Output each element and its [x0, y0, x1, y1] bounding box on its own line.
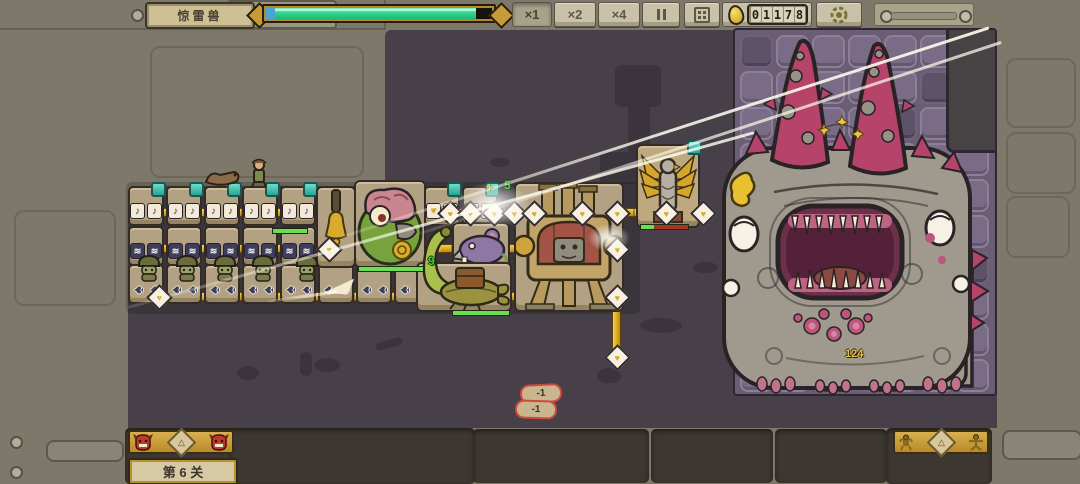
- unit-card[interactable]: ♪♪: [280, 186, 316, 226]
- minimap-button[interactable]: [684, 2, 720, 27]
- hero-icon: [968, 434, 984, 451]
- currency-digits: 0 1 1 7 8: [747, 4, 808, 25]
- frame-panel: [1006, 196, 1070, 258]
- gold-egg-icon: [726, 3, 745, 25]
- recess-panel: [473, 429, 649, 483]
- boss-monster[interactable]: [716, 26, 998, 398]
- speed-x4-label: ×4: [612, 7, 627, 22]
- note-icon: ♪: [261, 203, 276, 219]
- recess-panel: [229, 428, 475, 484]
- heart-icon: ♥: [615, 293, 620, 303]
- frame-panel: [1006, 58, 1076, 128]
- top-slider-panel[interactable]: [874, 3, 974, 26]
- recess-panel: [775, 429, 887, 483]
- note-icon: ♪: [223, 203, 238, 219]
- note-icon: ♪: [168, 203, 183, 219]
- speed-x1-button[interactable]: ×1: [512, 2, 552, 27]
- green-creature: [356, 182, 424, 266]
- boss-nameplate: 惊雷兽: [145, 2, 255, 29]
- unit-card[interactable]: ♪♪: [166, 186, 202, 226]
- spade-icon: ♠: [397, 283, 411, 297]
- heart-icon: ♥: [580, 209, 585, 219]
- background-cactus: [300, 352, 312, 376]
- spade-icon: ♠: [359, 283, 373, 297]
- strongman-icon: [898, 434, 914, 451]
- speed-x2-label: ×2: [568, 7, 583, 22]
- speed-x2-button[interactable]: ×2: [554, 2, 596, 27]
- speed-x4-button[interactable]: ×4: [598, 2, 640, 27]
- background-prop: [615, 65, 661, 107]
- heart-icon: ♥: [701, 209, 706, 219]
- frame-panel: [14, 210, 116, 306]
- note-icon: ♪: [282, 203, 297, 219]
- goblin-rider: [136, 252, 162, 287]
- note-icon: ♪: [244, 203, 259, 219]
- game-screen: ♪♪♪♪♪♪♪♪♪♪≋≋≋≋≋≋≋≋≋≋♠♠♠♠♠♠♠♠♠♠♠♠♠♠♠♠♥♥♥♥: [0, 0, 1080, 484]
- impact-glow: [588, 224, 630, 252]
- gear-icon: [829, 5, 849, 25]
- demon-face-icon: [133, 434, 153, 451]
- background-cactus: [314, 358, 340, 372]
- currency-digit: 1: [762, 7, 772, 22]
- pause-icon: [663, 9, 666, 20]
- spade-icon: ♠: [375, 283, 389, 297]
- damage-popup: -1: [515, 399, 558, 419]
- triangle-icon: △: [178, 436, 185, 447]
- goblin-rider: [174, 252, 200, 287]
- banner-diamond: △: [166, 427, 196, 457]
- top-bar: 惊雷兽 ×1 ×2 ×4 0 1 1 7: [0, 0, 1080, 28]
- heart-icon: ♥: [664, 209, 669, 219]
- slider-knob[interactable]: [959, 10, 972, 23]
- wave-banner-left: △: [128, 430, 234, 454]
- card-counter: 9: [428, 254, 435, 268]
- stage-plate: 第 6 关: [128, 458, 238, 484]
- note-icon: ♪: [185, 203, 200, 219]
- currency-digit: 7: [784, 7, 794, 22]
- heart-icon: ♥: [532, 209, 537, 219]
- background-rock: [490, 158, 510, 167]
- banner-diamond: △: [926, 427, 956, 457]
- hp-highlight: [275, 9, 476, 11]
- note-icon: ♪: [206, 203, 221, 219]
- currency-digit: 1: [773, 7, 783, 22]
- unit-card[interactable]: ♪♪: [204, 186, 240, 226]
- note-icon: ♪: [147, 203, 162, 219]
- recess-panel: [651, 429, 773, 483]
- gem-icon: [151, 182, 166, 197]
- pause-button[interactable]: [642, 2, 680, 27]
- frame-panel: [1006, 132, 1076, 194]
- background-rock: [640, 318, 682, 333]
- hero-banner-right: △: [893, 430, 989, 454]
- currency-digit: 0: [751, 7, 761, 22]
- boss-hp-bar: [262, 4, 496, 23]
- demon-face-icon: [209, 434, 229, 451]
- pause-icon: [657, 9, 660, 20]
- triangle-icon: △: [938, 436, 945, 447]
- heart-icon: ♥: [615, 353, 620, 363]
- stage-label: 第 6 关: [163, 462, 203, 481]
- currency-digit: 8: [795, 7, 805, 22]
- unit-hp-bar: [272, 228, 308, 234]
- gem-icon: [189, 182, 204, 197]
- speed-x1-label: ×1: [525, 7, 540, 22]
- unit-hp-bar: [452, 310, 510, 316]
- bottom-bar: △ 第 6 关 野兽 Lv. 14 巨鼠 HP. 321/347 E: [0, 428, 1080, 484]
- boss-damage-number: 124: [845, 348, 863, 360]
- weasel-critter: [204, 166, 242, 188]
- boss-name: 惊雷兽: [177, 7, 222, 24]
- note-icon: ♪: [130, 203, 145, 219]
- boss-hp-shield: [266, 8, 275, 19]
- slider-track: [891, 12, 957, 20]
- eagle-hp-red: [654, 224, 689, 230]
- unit-card[interactable]: ♪♪: [242, 186, 278, 226]
- currency-counter: 0 1 1 7 8: [722, 2, 812, 27]
- grid-icon: [694, 7, 710, 23]
- note-icon: ♪: [299, 203, 314, 219]
- background-plant: [237, 366, 259, 380]
- unit-card[interactable]: ♪♪: [128, 186, 164, 226]
- heart-icon: ♥: [615, 209, 620, 219]
- background-rock: [693, 262, 718, 273]
- miner-critter: [248, 158, 270, 188]
- settings-button[interactable]: [816, 2, 862, 27]
- unit-hp-bar: [358, 266, 424, 272]
